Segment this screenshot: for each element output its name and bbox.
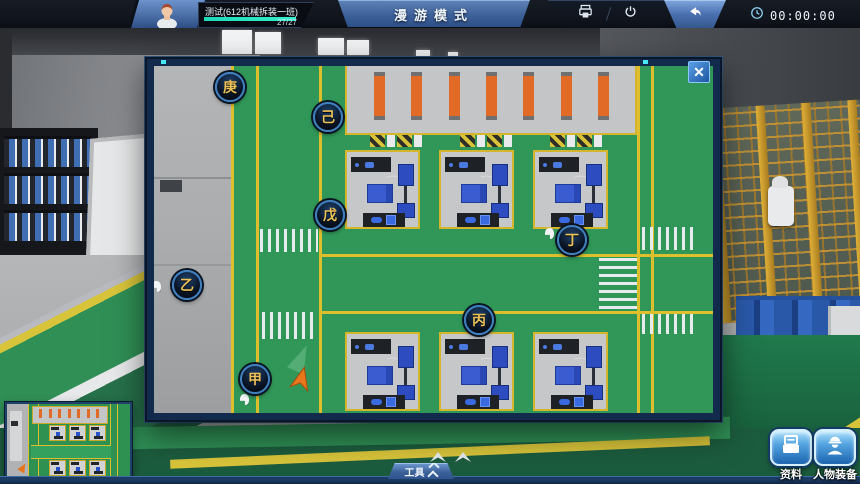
poi-icon xyxy=(240,394,249,405)
panel-tick xyxy=(161,60,166,64)
map-marker[interactable]: 戊 xyxy=(315,200,345,230)
factory-map-panel: 庚己戊乙甲丁丙 ✕ xyxy=(145,57,722,422)
road-line xyxy=(319,254,713,257)
robot-figure xyxy=(768,186,794,226)
document-icon xyxy=(779,433,803,462)
minimap-cell xyxy=(49,425,66,441)
equipment-button[interactable] xyxy=(814,429,856,466)
workbench xyxy=(523,72,534,120)
binder-shelf xyxy=(0,128,98,270)
clock-icon xyxy=(750,6,764,25)
close-icon[interactable]: ✕ xyxy=(688,61,710,83)
crosswalk xyxy=(262,312,317,339)
minimap-cell xyxy=(89,460,106,476)
minimap-workbench-area xyxy=(32,406,108,424)
workbench-area xyxy=(345,66,637,135)
work-cell xyxy=(345,150,420,229)
player-count: 27/27 xyxy=(277,18,297,27)
chevron-up-icon xyxy=(430,463,438,480)
timer-value: 00:00:00 xyxy=(770,9,836,23)
road-line xyxy=(231,66,234,413)
road-line xyxy=(637,66,640,413)
map-content: 庚己戊乙甲丁丙 xyxy=(154,66,713,413)
work-cell xyxy=(345,332,420,411)
player-position-arrow xyxy=(285,362,318,398)
minimap-cell xyxy=(69,425,86,441)
road-line xyxy=(256,66,259,413)
minimap-road xyxy=(31,445,111,459)
work-cell xyxy=(439,332,514,411)
map-marker[interactable]: 乙 xyxy=(172,270,202,300)
tools-tab[interactable]: 工具 xyxy=(388,463,454,479)
avatar-image xyxy=(154,2,180,28)
data-button-label: 资料 xyxy=(770,466,812,482)
worker-icon xyxy=(823,433,847,462)
work-cell xyxy=(533,150,608,229)
data-button[interactable] xyxy=(770,429,812,466)
map-marker[interactable]: 己 xyxy=(313,102,343,132)
crosswalk xyxy=(599,257,637,309)
minimap-cabinet xyxy=(10,411,22,461)
mode-title: 漫游模式 xyxy=(338,0,530,27)
map-marker[interactable]: 甲 xyxy=(240,364,270,394)
workbench xyxy=(449,72,460,120)
crosswalk xyxy=(642,227,696,250)
crosswalk xyxy=(260,229,318,252)
avatar[interactable] xyxy=(128,0,207,28)
workbench xyxy=(486,72,497,120)
divider xyxy=(605,7,610,21)
back-arrow-icon xyxy=(685,3,705,26)
workbench xyxy=(411,72,422,120)
minimap-cell xyxy=(89,425,106,441)
map-marker[interactable]: 庚 xyxy=(215,72,245,102)
work-cell xyxy=(533,332,608,411)
workbench xyxy=(374,72,385,120)
panel-tick xyxy=(643,60,648,64)
minimap-cell xyxy=(49,460,66,476)
poi-icon xyxy=(545,228,554,239)
topbar-icon-group xyxy=(548,0,666,27)
workbench xyxy=(561,72,572,120)
print-icon[interactable] xyxy=(577,3,594,25)
workbench xyxy=(598,72,609,120)
wall-edge xyxy=(0,28,12,128)
minimap[interactable] xyxy=(5,402,132,478)
power-icon[interactable] xyxy=(623,4,638,24)
player-name-plate[interactable]: 测试(612机械拆装一班) 27/27 xyxy=(198,2,314,28)
tools-label: 工具 xyxy=(405,464,425,479)
screen: 测试(612机械拆装一班) 27/27 漫游模式 xyxy=(0,0,860,484)
minimap-cell xyxy=(69,460,86,476)
equipment-button-label: 人物装备 xyxy=(807,466,860,482)
map-marker[interactable]: 丙 xyxy=(464,305,494,335)
session-timer: 00:00:00 xyxy=(750,6,836,25)
panel-rail-left xyxy=(147,59,154,420)
crosswalk xyxy=(642,314,696,334)
work-cell xyxy=(439,150,514,229)
map-marker[interactable]: 丁 xyxy=(557,225,587,255)
panel-rail-right xyxy=(713,59,720,420)
map-gray-zone xyxy=(154,66,231,413)
